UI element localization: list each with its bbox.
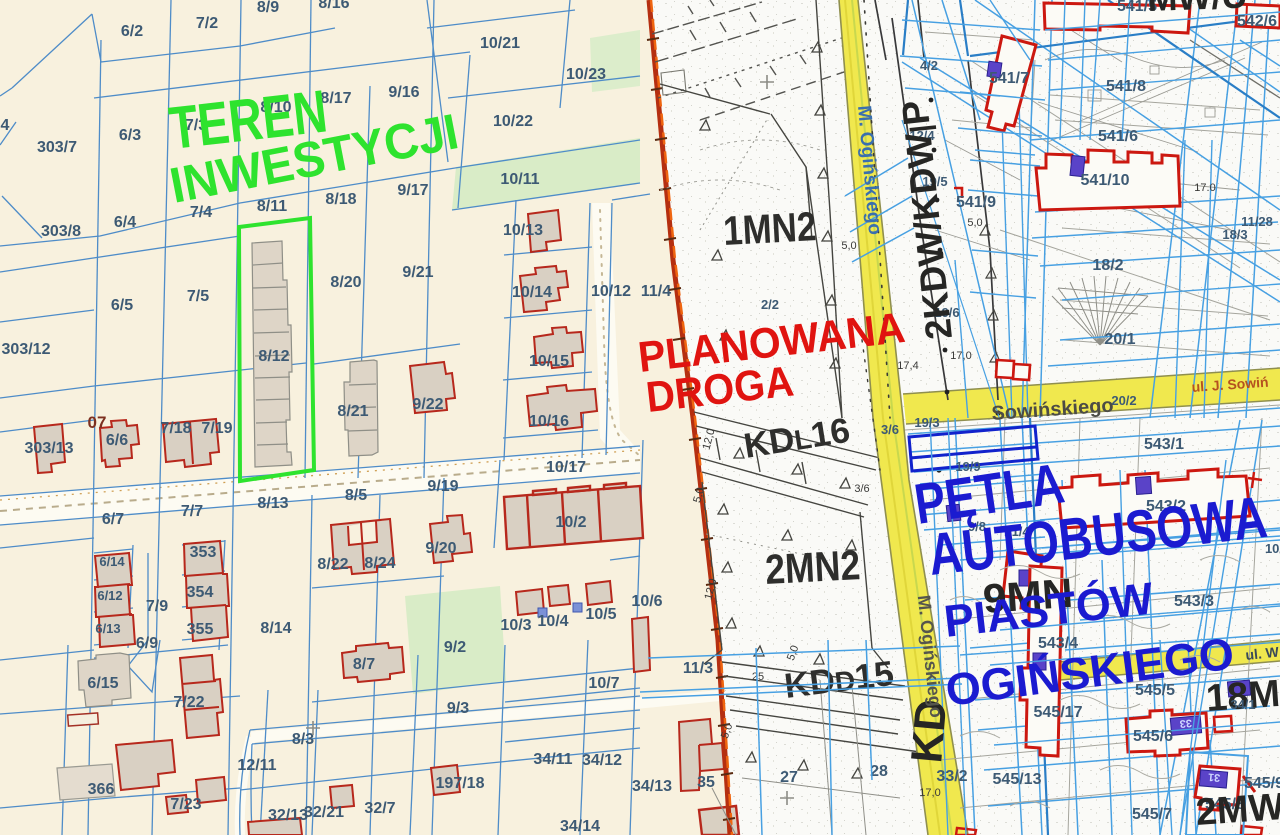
svg-text:303/7: 303/7 [37, 139, 77, 156]
svg-text:28: 28 [870, 763, 888, 780]
svg-text:11/3: 11/3 [683, 660, 713, 677]
svg-text:33: 33 [1179, 717, 1192, 730]
svg-text:6/6: 6/6 [106, 432, 128, 449]
svg-text:20/2: 20/2 [1111, 393, 1136, 408]
svg-text:6/14: 6/14 [99, 554, 125, 569]
svg-text:7/7: 7/7 [181, 503, 203, 520]
svg-text:10/15: 10/15 [529, 353, 569, 370]
svg-text:34/1: 34/1 [1230, 697, 1255, 712]
svg-text:7/19: 7/19 [201, 420, 232, 437]
svg-text:197/18: 197/18 [436, 775, 485, 792]
svg-text:541/7: 541/7 [989, 70, 1029, 87]
svg-text:545/6: 545/6 [1133, 728, 1173, 745]
svg-text:10/6: 10/6 [631, 593, 662, 610]
svg-text:2/2: 2/2 [761, 297, 779, 312]
svg-text:18/3: 18/3 [1222, 227, 1247, 242]
svg-text:25: 25 [752, 671, 764, 683]
svg-text:5,0: 5,0 [841, 240, 856, 252]
svg-text:10/4: 10/4 [537, 613, 568, 630]
svg-text:7/5: 7/5 [187, 288, 209, 305]
svg-text:18/2: 18/2 [1092, 257, 1123, 274]
svg-text:32/21: 32/21 [304, 804, 344, 821]
svg-text:3/6: 3/6 [881, 422, 899, 437]
svg-text:354: 354 [187, 584, 214, 601]
svg-text:19/3: 19/3 [914, 415, 939, 430]
svg-text:33/2: 33/2 [936, 768, 967, 785]
svg-text:4/2: 4/2 [920, 58, 938, 73]
svg-text:8/14: 8/14 [260, 620, 291, 637]
svg-text:7/18: 7/18 [160, 420, 191, 437]
svg-text:545/13: 545/13 [993, 771, 1042, 788]
svg-text:2MW: 2MW [1194, 786, 1280, 834]
svg-text:9/22: 9/22 [412, 396, 443, 413]
svg-text:32/13: 32/13 [268, 807, 308, 824]
svg-text:355: 355 [187, 621, 214, 638]
svg-text:9/2: 9/2 [444, 639, 466, 656]
svg-text:7/22: 7/22 [173, 694, 204, 711]
svg-text:12/11: 12/11 [237, 757, 276, 774]
svg-text:31: 31 [1208, 770, 1221, 783]
svg-text:34/13: 34/13 [632, 778, 672, 795]
svg-text:541/9: 541/9 [956, 194, 996, 211]
svg-text:8/3: 8/3 [292, 731, 314, 748]
svg-text:17,0: 17,0 [919, 787, 940, 799]
svg-text:8/20: 8/20 [330, 274, 361, 291]
svg-text:10/11: 10/11 [500, 171, 539, 188]
svg-text:17.0: 17.0 [1194, 182, 1215, 194]
svg-text:9/20: 9/20 [425, 540, 456, 557]
svg-text:6/5: 6/5 [111, 297, 133, 314]
svg-text:6/2: 6/2 [121, 23, 143, 40]
svg-text:10/16: 10/16 [529, 413, 569, 430]
svg-text:6/13: 6/13 [95, 621, 120, 636]
svg-text:303/13: 303/13 [25, 440, 74, 457]
svg-text:6/9: 6/9 [136, 635, 158, 652]
svg-text:545/17: 545/17 [1034, 704, 1083, 721]
svg-text:303/8: 303/8 [41, 223, 81, 240]
svg-text:20/1: 20/1 [1104, 331, 1135, 348]
svg-text:8/12: 8/12 [258, 348, 289, 365]
svg-text:17,4: 17,4 [897, 360, 918, 372]
svg-text:10/7: 10/7 [588, 675, 619, 692]
svg-text:8/11: 8/11 [257, 198, 287, 215]
svg-text:543/1: 543/1 [1144, 436, 1184, 453]
svg-text:10/23: 10/23 [566, 66, 606, 83]
svg-text:10/5: 10/5 [585, 606, 616, 623]
svg-text:4: 4 [1, 117, 10, 134]
svg-text:545/7: 545/7 [1132, 806, 1172, 823]
svg-text:9/16: 9/16 [388, 84, 419, 101]
svg-text:9/21: 9/21 [402, 264, 433, 281]
svg-text:5,0: 5,0 [967, 217, 982, 229]
svg-text:541/10: 541/10 [1081, 172, 1130, 189]
svg-text:541/8: 541/8 [1106, 78, 1146, 95]
svg-text:2MN2: 2MN2 [764, 541, 861, 593]
svg-text:353: 353 [190, 544, 217, 561]
svg-text:7/23: 7/23 [170, 796, 201, 813]
svg-text:8/24: 8/24 [364, 555, 395, 572]
svg-text:6/7: 6/7 [102, 511, 124, 528]
svg-text:10/22: 10/22 [493, 113, 533, 130]
svg-text:07: 07 [88, 413, 107, 432]
svg-text:6/4: 6/4 [114, 214, 136, 231]
svg-text:7/9: 7/9 [146, 598, 168, 615]
svg-text:9/3: 9/3 [447, 700, 469, 717]
svg-text:8/16: 8/16 [318, 0, 349, 12]
svg-text:303/12: 303/12 [2, 341, 51, 358]
svg-text:3/6: 3/6 [854, 483, 869, 495]
svg-text:9/17: 9/17 [397, 182, 428, 199]
svg-text:32/7: 32/7 [364, 800, 395, 817]
svg-text:541/6: 541/6 [1098, 128, 1138, 145]
svg-text:10/17: 10/17 [546, 459, 586, 476]
svg-text:1MN2: 1MN2 [722, 203, 817, 254]
svg-text:10/12: 10/12 [591, 283, 631, 300]
svg-text:27: 27 [780, 769, 798, 786]
svg-text:8/5: 8/5 [345, 487, 367, 504]
svg-text:10/14: 10/14 [512, 284, 552, 301]
svg-text:366: 366 [88, 781, 115, 798]
svg-text:8/7: 8/7 [353, 656, 375, 673]
svg-text:11/4: 11/4 [641, 283, 671, 300]
svg-text:8/18: 8/18 [325, 191, 356, 208]
svg-text:34/14: 34/14 [560, 818, 600, 835]
svg-text:17,0: 17,0 [950, 350, 971, 362]
svg-text:10/13: 10/13 [503, 222, 543, 239]
svg-text:9/19: 9/19 [427, 478, 458, 495]
svg-text:10/2: 10/2 [555, 514, 586, 531]
svg-text:8/22: 8/22 [317, 556, 348, 573]
svg-text:6/15: 6/15 [87, 675, 118, 692]
svg-text:6/12: 6/12 [97, 588, 122, 603]
svg-text:10/3: 10/3 [500, 617, 531, 634]
svg-text:34/12: 34/12 [582, 752, 622, 769]
svg-text:8/9: 8/9 [257, 0, 279, 16]
svg-text:8/13: 8/13 [257, 495, 288, 512]
svg-text:34/11: 34/11 [533, 751, 572, 768]
svg-text:8/21: 8/21 [337, 403, 368, 420]
svg-text:10/21: 10/21 [480, 35, 520, 52]
svg-text:7/2: 7/2 [196, 15, 218, 32]
svg-text:6/3: 6/3 [119, 127, 141, 144]
svg-text:543/3: 543/3 [1174, 593, 1214, 610]
